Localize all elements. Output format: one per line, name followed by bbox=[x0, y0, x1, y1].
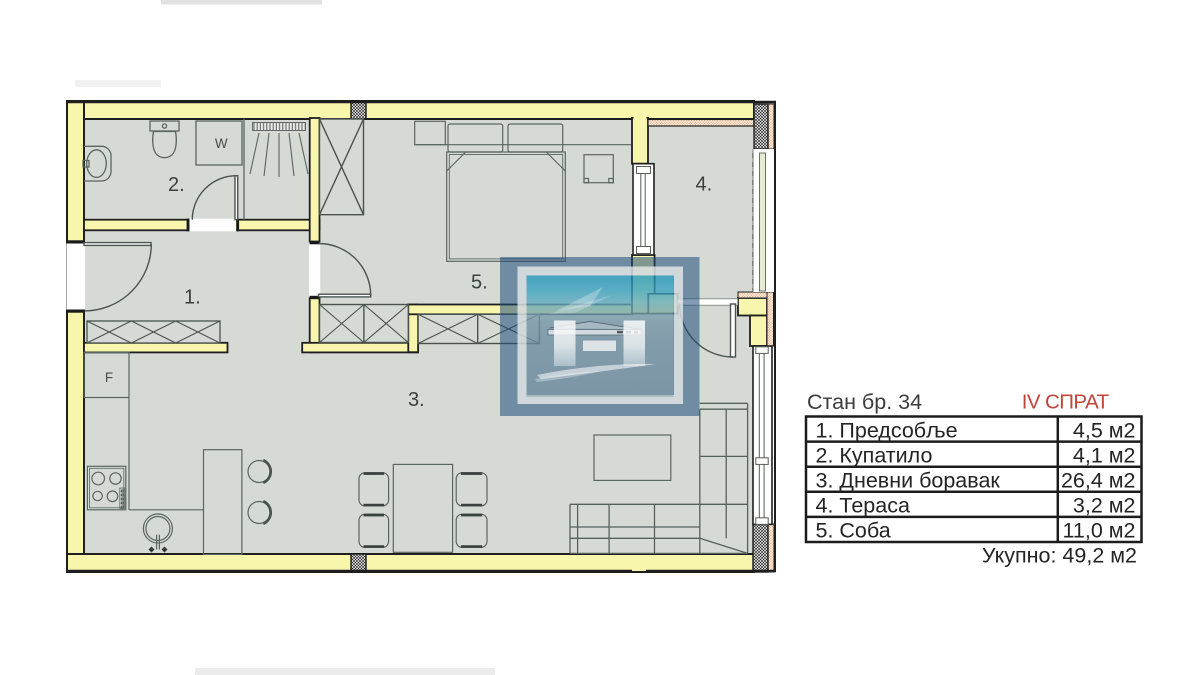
svg-text:4,1 м2: 4,1 м2 bbox=[1073, 443, 1136, 467]
svg-text:5. Соба: 5. Соба bbox=[816, 519, 891, 543]
svg-text:1. Предсобље: 1. Предсобље bbox=[816, 418, 958, 442]
svg-text:3.: 3. bbox=[408, 389, 425, 411]
svg-text:Укупно: 49,2 м2: Укупно: 49,2 м2 bbox=[982, 544, 1137, 568]
svg-text:2. Купатило: 2. Купатило bbox=[816, 443, 933, 467]
svg-text:Стан бр. 34: Стан бр. 34 bbox=[807, 390, 922, 414]
svg-text:11,0 м2: 11,0 м2 bbox=[1063, 519, 1136, 543]
svg-text:5.: 5. bbox=[471, 272, 488, 294]
svg-text:4,5 м2: 4,5 м2 bbox=[1073, 418, 1136, 442]
svg-text:3. Дневни боравак: 3. Дневни боравак bbox=[816, 469, 1001, 493]
svg-text:W: W bbox=[215, 136, 228, 151]
svg-text:26,4 м2: 26,4 м2 bbox=[1061, 469, 1136, 493]
svg-text:4. Тераса: 4. Тераса bbox=[816, 494, 910, 518]
svg-text:4.: 4. bbox=[696, 174, 713, 196]
svg-text:1.: 1. bbox=[184, 287, 201, 309]
svg-text:IV СПРАТ: IV СПРАТ bbox=[1022, 391, 1110, 414]
svg-text:3,2 м2: 3,2 м2 bbox=[1073, 494, 1136, 518]
svg-text:F: F bbox=[105, 370, 113, 385]
svg-text:2.: 2. bbox=[168, 174, 185, 196]
